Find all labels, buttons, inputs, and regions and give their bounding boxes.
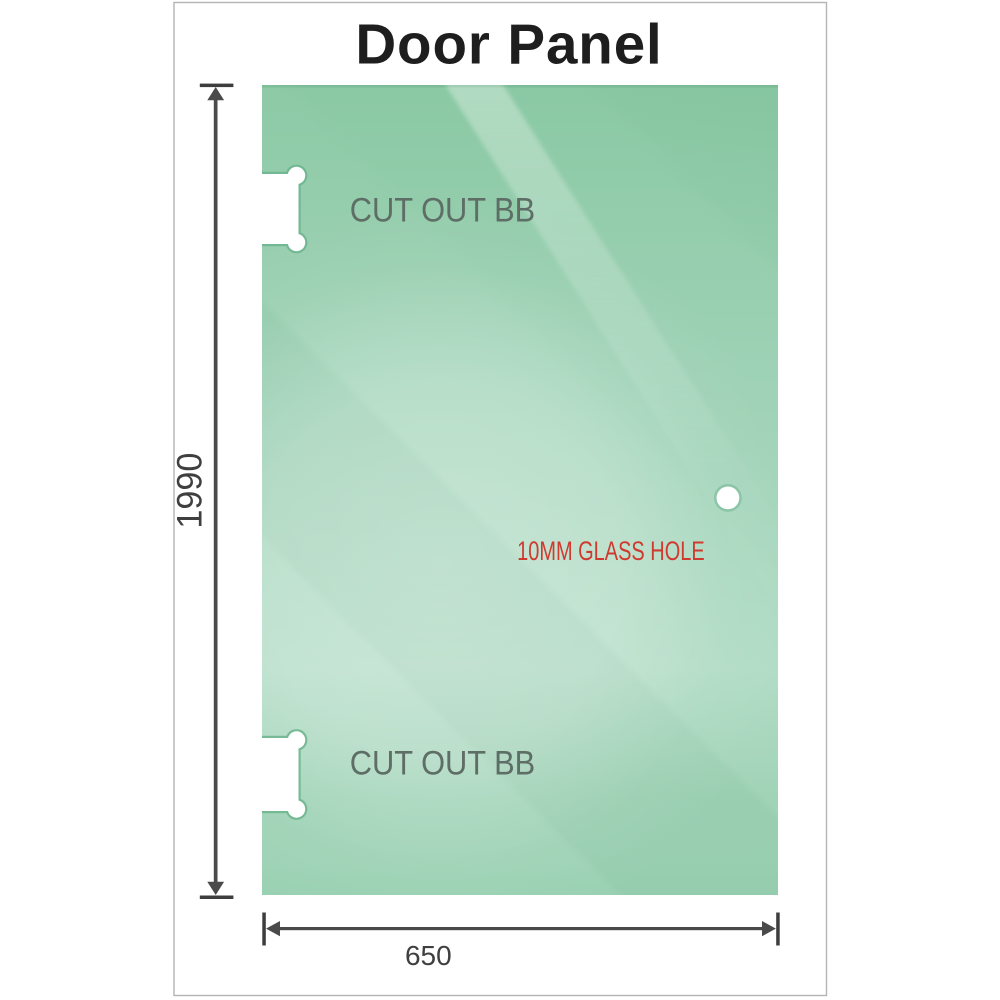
- svg-text:10MM GLASS HOLE: 10MM GLASS HOLE: [517, 536, 705, 566]
- svg-text:650: 650: [405, 940, 452, 971]
- svg-text:Door Panel: Door Panel: [355, 13, 662, 76]
- svg-text:1990: 1990: [170, 453, 210, 529]
- svg-text:CUT OUT BB: CUT OUT BB: [350, 192, 536, 230]
- svg-text:CUT OUT BB: CUT OUT BB: [350, 745, 536, 783]
